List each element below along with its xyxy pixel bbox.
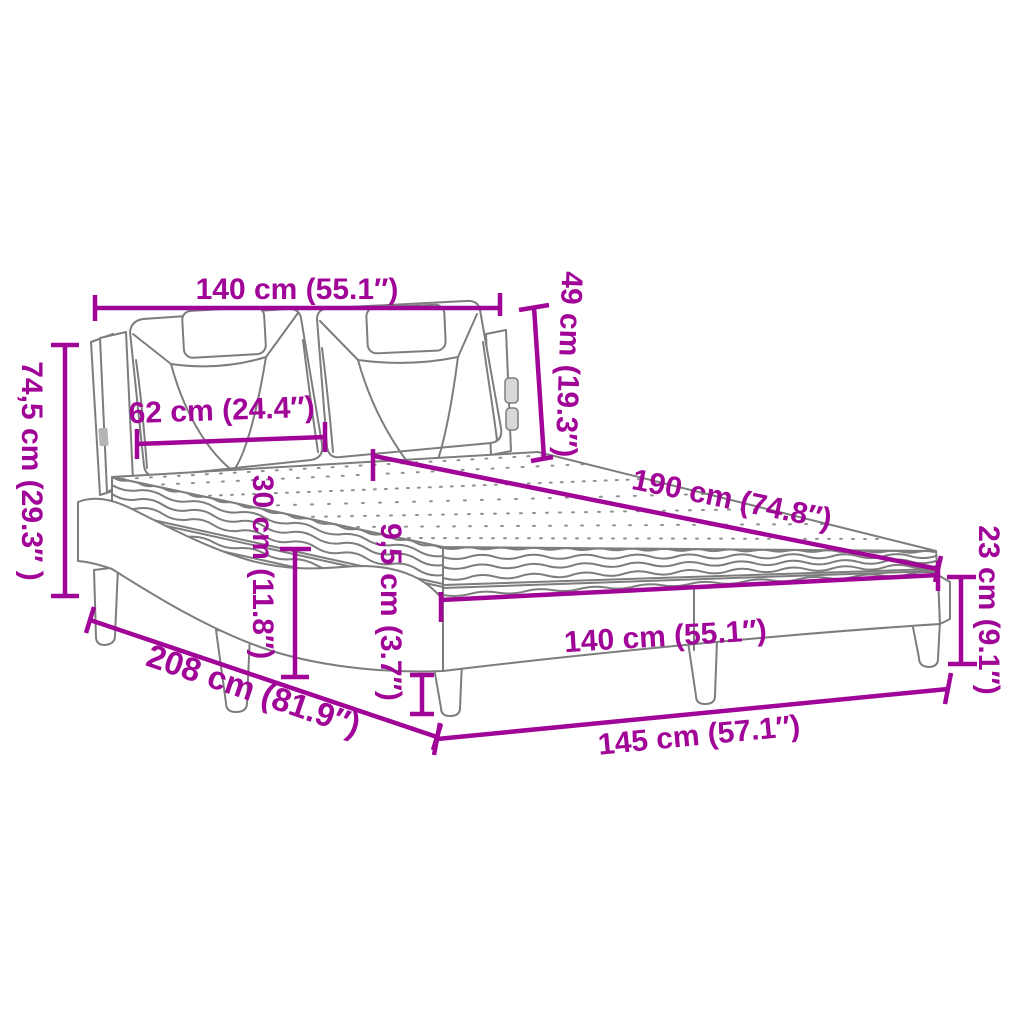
leg-head-left [94,567,118,645]
left-cushion-pad [182,307,266,359]
dim-label-headboard-height: 49 cm (19.3″) [549,271,588,458]
right-post-hinge-bottom [506,408,518,430]
bed-dimension-diagram: 140 cm (55.1″) 49 cm (19.3″) 74,5 cm (29… [0,0,1024,1024]
dim-label-overall-width: 145 cm (57.1″) [597,709,802,761]
dim-line-headboard-height [519,305,553,461]
dim-label-overall-height: 74,5 cm (29.3″ ) [15,361,48,581]
dim-line-leg-height [410,675,434,714]
right-cushion-pad [366,304,446,353]
right-post-hinge-top [505,378,518,403]
dim-label-headboard-width: 140 cm (55.1″) [196,273,399,306]
left-post-hinge [98,428,108,447]
dim-label-panel-height: 30 cm (11.8″) [246,475,279,659]
dim-label-frame-height: 23 cm (9.1″) [972,525,1005,694]
dim-line-overall-height [51,345,79,596]
dim-label-leg-height: 9,5 cm (3.7″) [374,523,407,701]
leg-front-right [912,620,940,667]
dim-label-cushion-width: 62 cm (24.4″) [128,391,315,430]
